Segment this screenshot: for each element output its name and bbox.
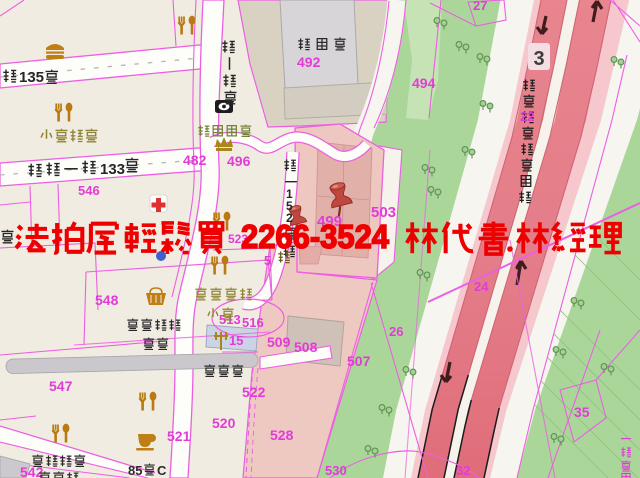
- svg-text:546: 546: [78, 183, 100, 198]
- svg-text:26: 26: [389, 324, 403, 339]
- svg-text:547: 547: [49, 378, 73, 394]
- svg-text:5: 5: [264, 253, 271, 268]
- svg-text:508: 508: [294, 339, 318, 355]
- svg-text:492: 492: [297, 54, 321, 70]
- svg-text:85: 85: [128, 463, 142, 478]
- svg-text:516: 516: [242, 315, 264, 330]
- svg-text:507: 507: [347, 353, 371, 369]
- svg-text:528: 528: [270, 427, 294, 443]
- svg-text:496: 496: [227, 153, 251, 169]
- svg-text:2266-3524: 2266-3524: [241, 218, 390, 255]
- svg-text:32: 32: [456, 463, 470, 478]
- svg-text:509: 509: [267, 334, 291, 350]
- svg-text:522: 522: [242, 384, 266, 400]
- svg-text:3: 3: [533, 48, 544, 70]
- svg-text:135: 135: [19, 69, 44, 86]
- svg-text:27: 27: [473, 0, 487, 13]
- svg-text:35: 35: [574, 404, 590, 420]
- svg-text:520: 520: [212, 415, 236, 431]
- svg-text:530: 530: [325, 463, 347, 478]
- svg-text:133: 133: [100, 161, 125, 178]
- svg-text:521: 521: [167, 428, 191, 444]
- svg-text:494: 494: [412, 75, 436, 91]
- svg-text:548: 548: [95, 292, 119, 308]
- svg-text:24: 24: [474, 279, 489, 294]
- svg-text:C: C: [157, 463, 167, 478]
- svg-text:15: 15: [229, 333, 243, 348]
- svg-text:482: 482: [183, 152, 207, 168]
- svg-text:22: 22: [520, 109, 534, 124]
